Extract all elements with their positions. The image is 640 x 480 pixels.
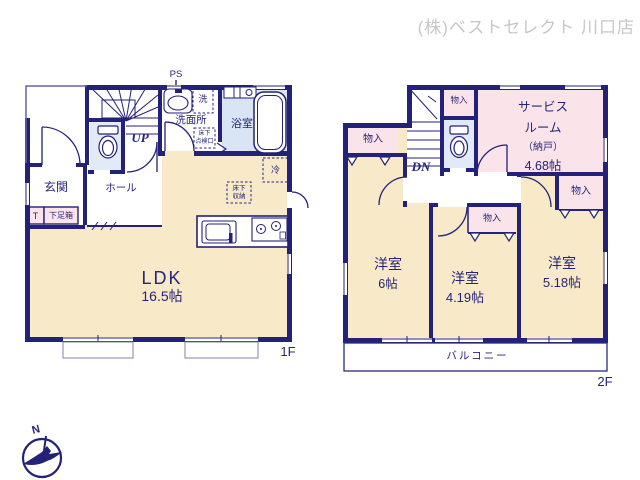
- floorplan-canvas: (株)ベストセレクト 川口店: [0, 0, 640, 480]
- label-room518-size: 5.18帖: [522, 276, 602, 291]
- toilet-icon-1f: [98, 126, 118, 158]
- label-closet-left: 物入: [348, 134, 398, 145]
- label-service-room: サービス ルーム （納戸） 4.68帖: [498, 96, 588, 174]
- label-room6-size: 6帖: [353, 277, 423, 291]
- label-underfloor-hatch: 床下 点検口: [194, 131, 215, 146]
- bath-counter-icon: [224, 87, 256, 98]
- label-room419-name: 洋室: [430, 271, 500, 287]
- label-hall: ホール: [96, 183, 146, 195]
- label-room6-name: 洋室: [353, 257, 423, 273]
- company-watermark: (株)ベストセレクト 川口店: [350, 13, 635, 38]
- washbasin-icon: [164, 89, 192, 113]
- entrance-steps: [63, 342, 258, 358]
- compass-icon: [23, 436, 62, 477]
- label-toilet-abbr: T: [27, 211, 44, 221]
- label-stairs-down: DN: [408, 160, 434, 175]
- label-pipe-space: PS: [167, 70, 185, 81]
- label-laundry: 洗: [193, 94, 213, 104]
- label-closet-right: 物入: [559, 186, 603, 197]
- label-ldk-size: 16.5帖: [112, 289, 212, 305]
- label-closet-top: 物入: [444, 96, 474, 106]
- label-fridge: 冷: [263, 165, 288, 175]
- label-closet-mid: 物入: [468, 213, 516, 223]
- label-floor1: 1F: [276, 345, 300, 360]
- label-washroom: 洗面所: [162, 115, 220, 127]
- label-balcony: バルコニー: [420, 351, 535, 363]
- label-bathroom: 浴室: [220, 118, 264, 130]
- label-floor2: 2F: [593, 375, 617, 390]
- kitchen-counter: [197, 216, 288, 247]
- label-ldk-name: LDK: [112, 268, 212, 288]
- label-stairs-up: UP: [128, 131, 152, 146]
- label-genkan: 玄関: [34, 181, 78, 194]
- label-underfloor-storage: 床下 収納: [227, 185, 251, 201]
- toilet-icon-2f: [450, 126, 468, 158]
- label-shoe-box: 下足箱: [44, 212, 78, 221]
- label-room419-size: 4.19帖: [425, 291, 505, 306]
- floorplan-graphics: [0, 0, 640, 480]
- label-room518-name: 洋室: [527, 256, 597, 272]
